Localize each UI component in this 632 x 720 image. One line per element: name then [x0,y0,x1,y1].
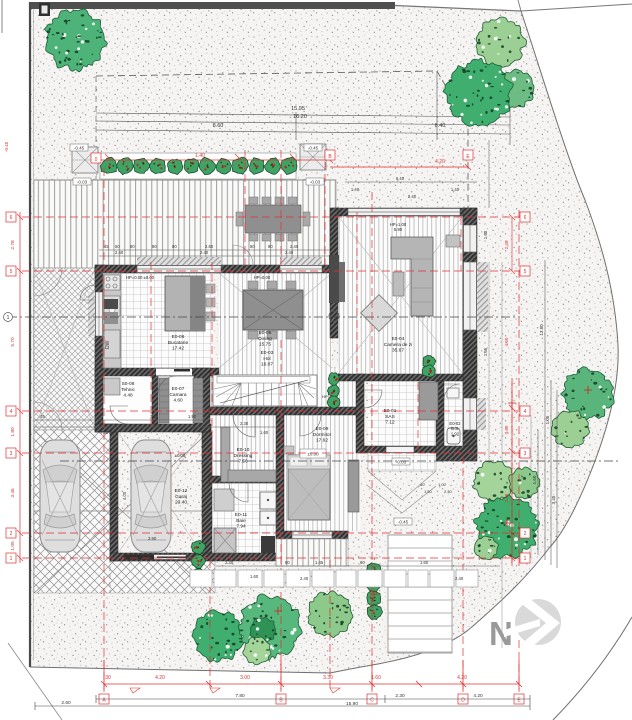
svg-text:4.48: 4.48 [123,393,133,399]
svg-text:2.30: 2.30 [225,560,234,565]
svg-text:80: 80 [250,244,255,249]
svg-text:4: 4 [524,409,527,415]
svg-text:2.78: 2.78 [10,240,16,250]
svg-text:2: 2 [10,531,13,537]
svg-text:E0-10: E0-10 [237,447,250,453]
svg-text:±0.00: ±0.00 [175,453,186,458]
svg-text:5: 5 [524,269,527,275]
svg-text:1.45: 1.45 [315,560,324,565]
svg-text:3.45: 3.45 [551,495,556,504]
svg-text:-0.45: -0.45 [74,146,85,151]
svg-text:1.80: 1.80 [10,427,16,437]
svg-text:Dressing: Dressing [234,453,253,459]
svg-text:E0-07: E0-07 [172,386,185,392]
svg-text:15.90: 15.90 [346,701,358,707]
svg-text:2.40: 2.40 [285,250,294,255]
svg-text:1.40: 1.40 [195,153,205,159]
svg-text:7.56: 7.56 [238,459,248,465]
svg-text:4: 4 [10,409,13,415]
svg-text:1: 1 [7,315,10,321]
svg-text:7.94: 7.94 [236,524,246,530]
svg-text:2.40: 2.40 [504,240,509,249]
svg-text:6.40: 6.40 [396,176,405,181]
svg-text:7.80: 7.80 [235,693,245,699]
svg-text:1.60: 1.60 [420,560,429,565]
svg-text:17.62: 17.62 [316,438,328,444]
svg-text:Hol: Hol [263,356,270,362]
svg-text:1.60: 1.60 [483,230,488,239]
svg-text:35.67: 35.67 [392,348,404,354]
svg-text:80: 80 [130,244,135,249]
svg-text:-0.45: -0.45 [308,146,319,151]
svg-text:2.40: 2.40 [290,244,299,249]
svg-text:Dining: Dining [258,336,272,342]
svg-text:8.60: 8.60 [213,123,224,129]
svg-text:80: 80 [172,244,177,249]
svg-text:80: 80 [152,244,157,249]
svg-text:E0-11: E0-11 [235,512,248,518]
svg-text:4.20: 4.20 [473,693,483,699]
svg-text:2.40: 2.40 [200,250,209,255]
svg-text:6: 6 [10,215,13,221]
svg-text:60: 60 [115,244,120,249]
svg-text:SAS: SAS [385,414,395,420]
svg-text:Garaj: Garaj [175,494,187,500]
svg-text:1.05: 1.05 [10,541,16,551]
svg-text:2.30: 2.30 [240,421,249,426]
svg-text:HP=0.00: HP=0.00 [254,275,271,280]
svg-text:1.40: 1.40 [451,187,460,192]
svg-text:2.60: 2.60 [61,700,71,706]
svg-text:Camara: Camara [169,392,186,398]
svg-text:1.60: 1.60 [371,675,381,681]
svg-text:3.30: 3.30 [323,675,333,681]
svg-text:Bucatarie: Bucatarie [168,340,189,346]
svg-text:1.60: 1.60 [532,475,537,484]
svg-text:1.05: 1.05 [545,415,550,424]
svg-text:4.20: 4.20 [435,159,445,165]
svg-text:-0.45: -0.45 [398,520,409,525]
svg-text:1.65: 1.65 [483,347,488,356]
svg-text:E0-03: E0-03 [261,350,274,356]
svg-text:D: D [461,698,465,704]
svg-text:6.40: 6.40 [435,123,446,129]
svg-text:5.70: 5.70 [10,337,16,347]
svg-text:DW: DW [105,340,111,349]
svg-text:1.00: 1.00 [438,482,447,487]
svg-text:1.60: 1.60 [250,574,259,579]
svg-text:6: 6 [524,215,527,221]
svg-text:1.90: 1.90 [188,414,197,419]
svg-text:23.40: 23.40 [175,500,187,506]
svg-text:3.46: 3.46 [504,493,509,502]
svg-text:3.60: 3.60 [504,425,509,434]
svg-text:2.30: 2.30 [395,693,405,699]
svg-text:5.90: 5.90 [394,227,403,232]
svg-text:-0.45: -0.45 [4,141,9,152]
svg-text:4.60: 4.60 [504,337,509,346]
svg-text:90: 90 [360,560,365,565]
svg-text:3.46: 3.46 [10,488,16,498]
svg-text:5: 5 [10,269,13,275]
svg-text:-0.03: -0.03 [396,460,407,465]
svg-text:7.12: 7.12 [385,420,395,426]
svg-text:16.20: 16.20 [293,114,307,120]
svg-text:1: 1 [524,556,527,562]
svg-text:80: 80 [285,560,290,565]
svg-text:4.20: 4.20 [155,675,165,681]
svg-text:80: 80 [268,244,273,249]
svg-text:1.40: 1.40 [351,187,360,192]
svg-text:3: 3 [10,451,13,457]
svg-text:3: 3 [524,451,527,457]
svg-text:E0-09: E0-09 [316,426,329,432]
svg-text:1: 1 [10,556,13,562]
svg-text:3.90: 3.90 [148,536,157,541]
svg-text:15.75: 15.75 [259,342,271,348]
svg-text:2: 2 [524,531,527,537]
svg-text:2.40: 2.40 [444,489,453,494]
svg-text:E0-06: E0-06 [172,334,185,340]
svg-text:Dormitor: Dormitor [313,432,332,438]
svg-text:2.40: 2.40 [455,576,464,581]
svg-text:E0-04: E0-04 [392,336,405,342]
svg-text:HP=0.00 ±0.00: HP=0.00 ±0.00 [126,275,155,280]
svg-text:3.00: 3.00 [240,675,250,681]
svg-text:S0-08: S0-08 [122,381,135,387]
svg-text:45: 45 [104,244,109,249]
svg-text:7.80: 7.80 [100,430,109,435]
svg-text:2.60: 2.60 [205,244,214,249]
svg-text:±0.00: ±0.00 [307,452,319,457]
svg-text:-0.03: -0.03 [77,180,88,185]
svg-text:-0.03: -0.03 [310,180,321,185]
svg-text:13.80: 13.80 [539,324,544,336]
svg-text:E0-12: E0-12 [175,488,188,494]
svg-text:C: C [370,698,374,704]
svg-text:0: 0 [95,157,98,163]
svg-text:3.00: 3.00 [150,414,159,419]
svg-text:Baie: Baie [236,518,246,524]
svg-text:E0-05: E0-05 [259,330,272,336]
svg-text:2.40: 2.40 [115,250,124,255]
svg-text:17.42: 17.42 [172,346,184,352]
svg-text:Tehnic: Tehnic [121,387,135,393]
svg-text:16.07: 16.07 [261,362,273,368]
svg-text:4.20: 4.20 [457,675,467,681]
svg-text:45: 45 [40,414,45,419]
svg-text:1.60: 1.60 [260,430,269,435]
svg-text:4.00: 4.00 [122,491,127,500]
svg-text:4.60: 4.60 [173,398,183,404]
svg-text:2.40: 2.40 [408,194,417,199]
svg-text:1.92: 1.92 [451,431,460,436]
svg-text:30: 30 [105,675,111,681]
svg-text:2.40: 2.40 [300,576,309,581]
svg-text:Camera de zi: Camera de zi [384,342,413,348]
svg-text:15.95: 15.95 [291,106,305,112]
